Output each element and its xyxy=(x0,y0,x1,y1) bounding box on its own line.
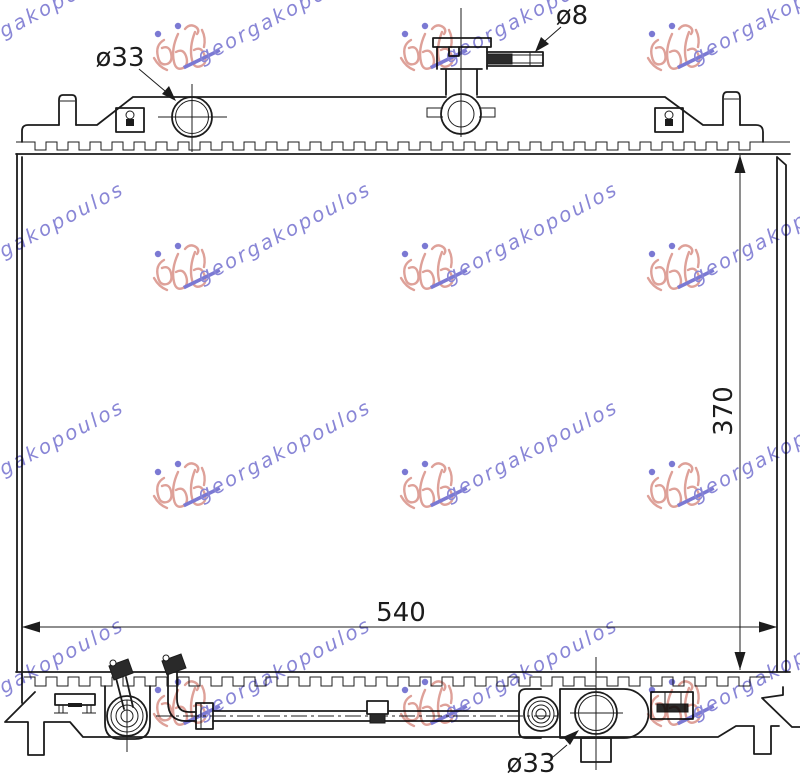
watermark xyxy=(648,0,800,70)
leader-arrowhead xyxy=(162,86,176,101)
arrowhead-right xyxy=(759,622,777,633)
watermark xyxy=(154,0,375,70)
label-cap-diameter: ø33 xyxy=(96,43,177,101)
pipe-clip-middle xyxy=(367,701,388,723)
radiator-drawing: 540 370 ø33 ø8 ø33 xyxy=(5,1,800,778)
arrowhead-left xyxy=(22,622,40,633)
bottom-right-flange xyxy=(762,687,800,727)
top-tank-crimp xyxy=(24,142,770,150)
mounting-peg-right xyxy=(723,92,740,125)
bracket-top-left xyxy=(116,108,144,132)
mounting-peg-left xyxy=(59,95,76,125)
watermark xyxy=(154,612,375,726)
arrowhead-down xyxy=(735,652,746,670)
watermark xyxy=(154,394,375,508)
dimension-width-value: 540 xyxy=(376,598,426,628)
watermark xyxy=(401,176,622,290)
svg-text:ø33: ø33 xyxy=(507,749,556,778)
keyhole-icon xyxy=(665,111,673,119)
watermark xyxy=(401,612,622,726)
watermark xyxy=(154,176,375,290)
watermark xyxy=(0,176,128,290)
svg-text:ø33: ø33 xyxy=(96,43,145,73)
outlet-port xyxy=(560,657,649,770)
inlet-pipe xyxy=(105,659,150,752)
watermark xyxy=(0,394,128,508)
dimension-height: 370 xyxy=(709,155,746,670)
bracket-top-right xyxy=(655,108,683,132)
bottom-tank-crimp xyxy=(24,677,770,686)
keyhole-icon xyxy=(126,111,134,119)
radiator-technical-drawing-page: 540 370 ø33 ø8 ø33 xyxy=(0,0,800,778)
clip-bracket-left xyxy=(54,694,96,713)
pipe-end-fitting xyxy=(519,689,558,738)
dimension-height-value: 370 xyxy=(709,386,739,436)
dimension-width: 540 xyxy=(22,598,777,633)
watermark xyxy=(401,394,622,508)
arrowhead-up xyxy=(735,155,746,173)
